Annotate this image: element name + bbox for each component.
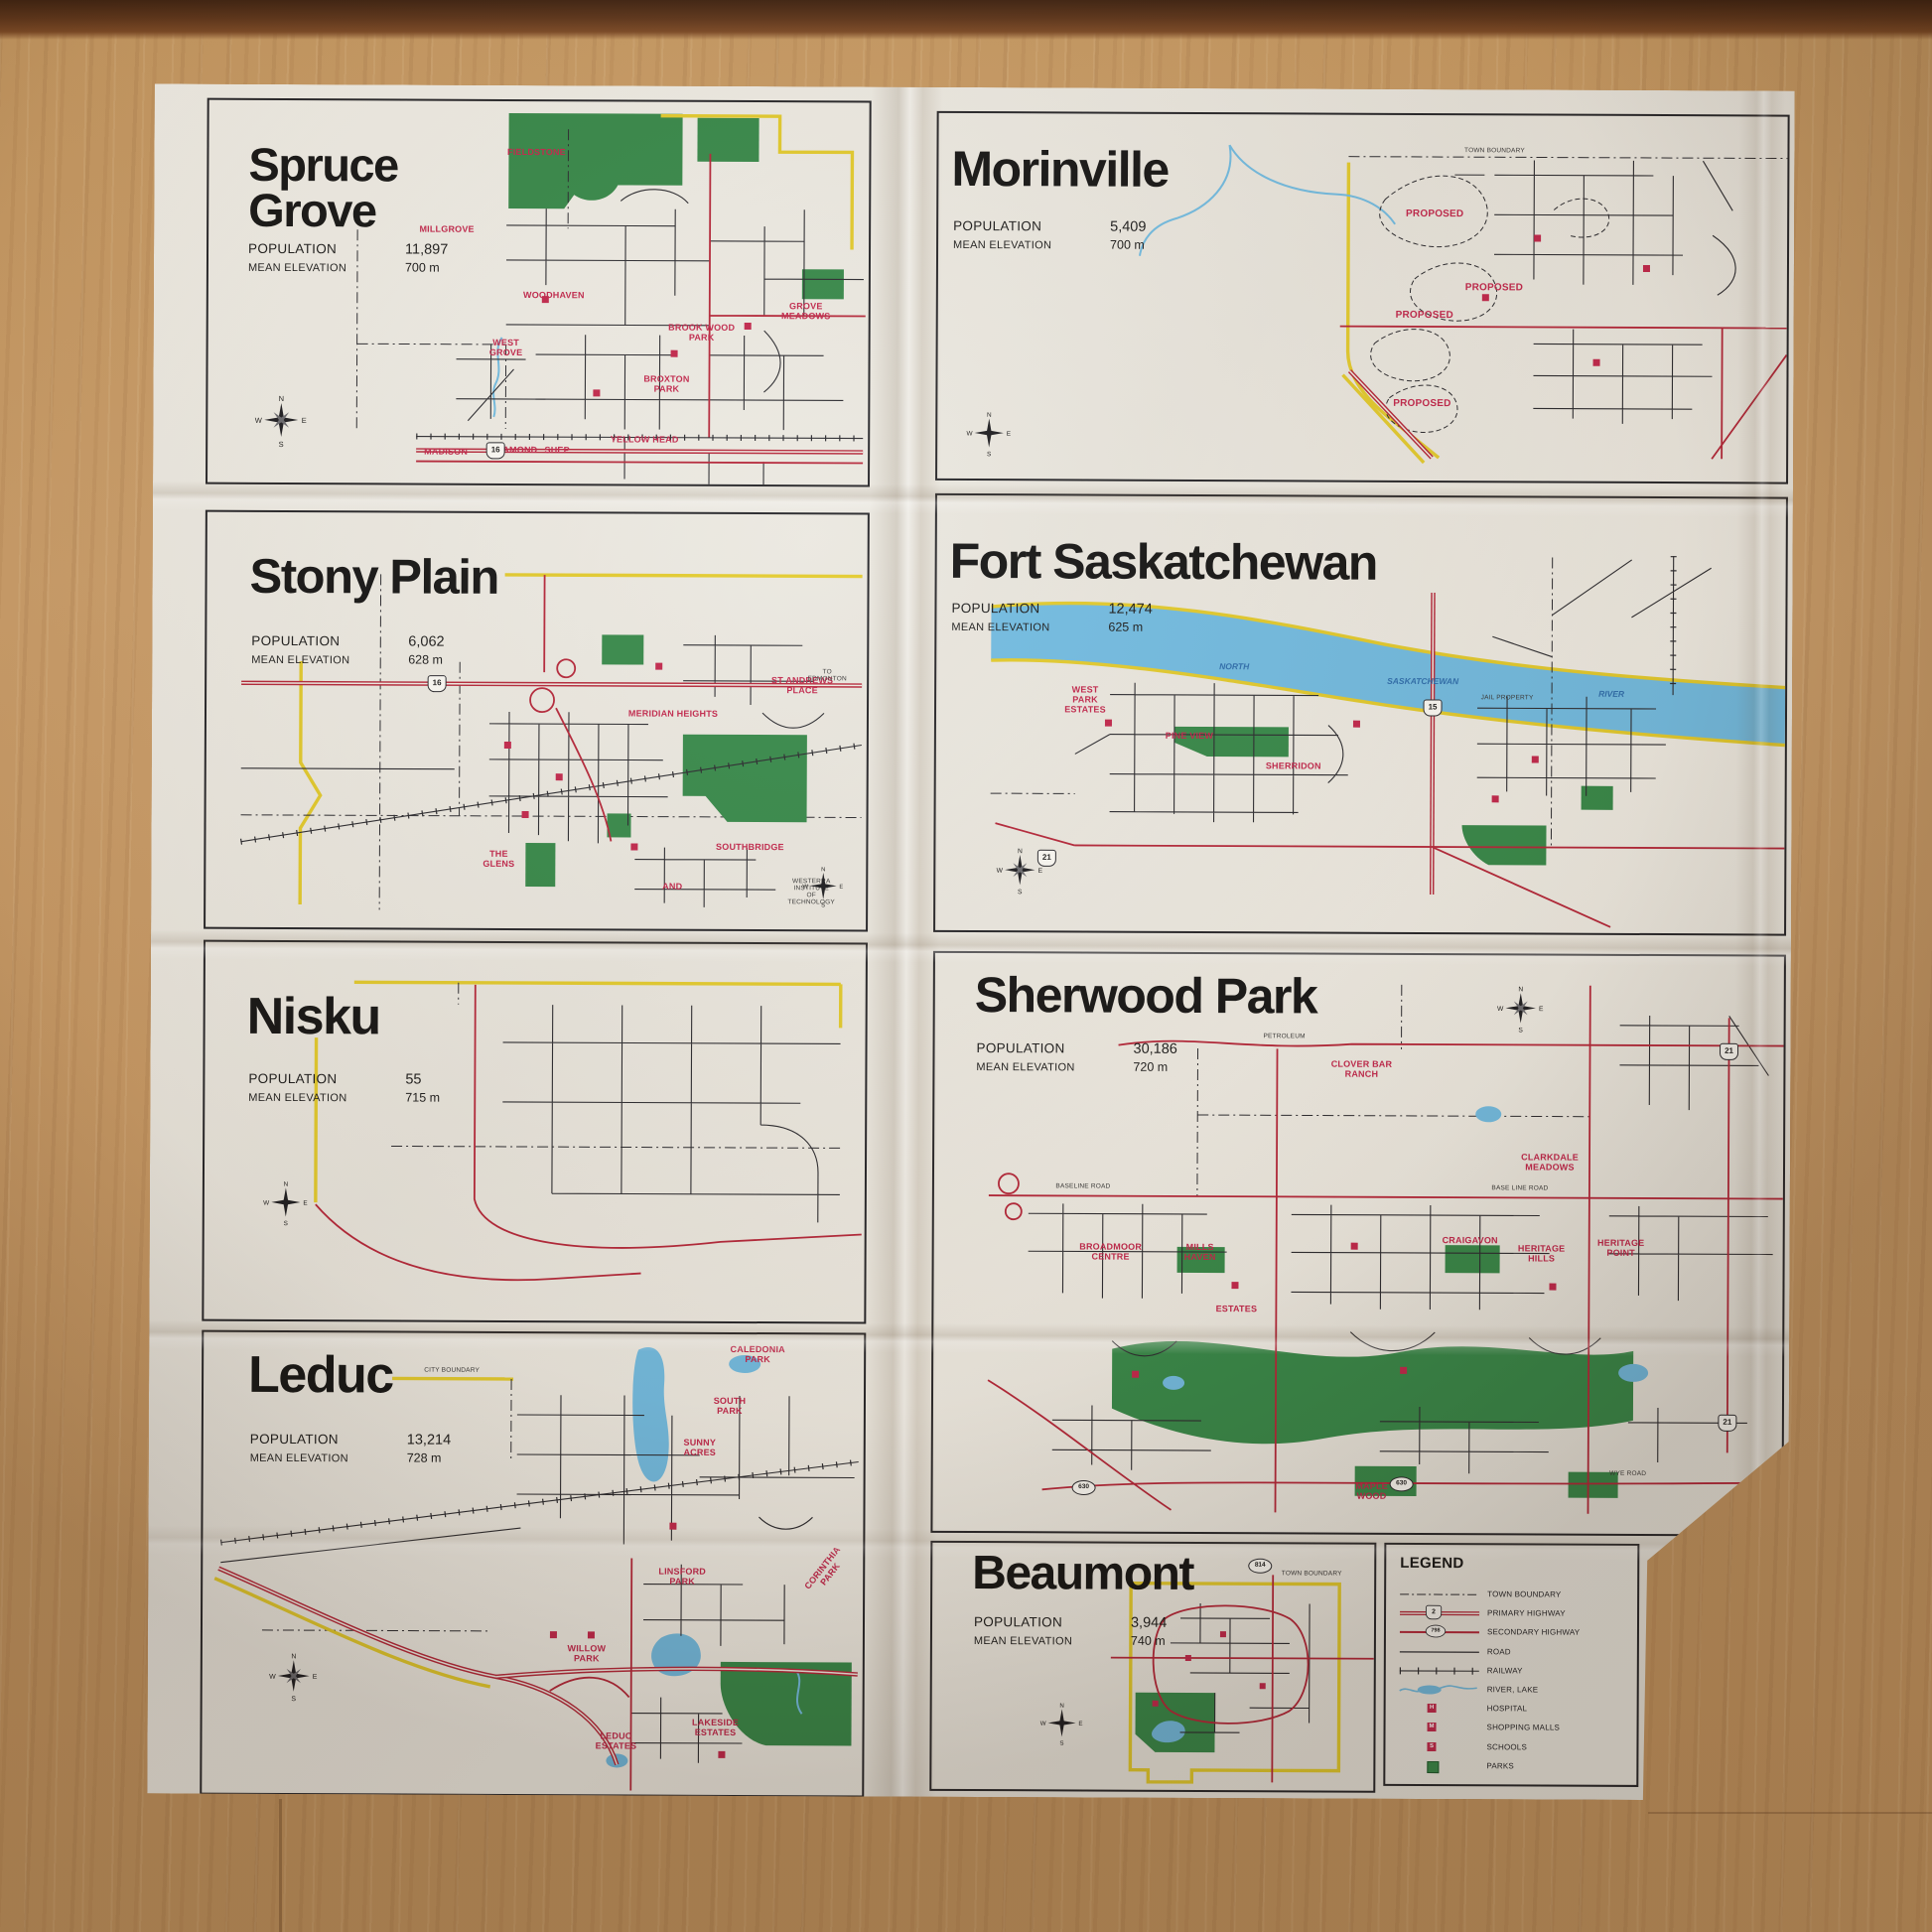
map-label-small: WYE ROAD <box>1609 1470 1646 1477</box>
school-icon <box>1220 1631 1226 1637</box>
elevation-value: 740 m <box>1131 1634 1166 1648</box>
panel-title: Spruce Grove <box>248 142 506 233</box>
school-icon <box>504 742 511 749</box>
legend-box: LEGEND TOWN BOUNDARY 2 PRIMARY HIGHWAY 7… <box>1383 1543 1639 1787</box>
highway-shield-oval: 630 <box>1072 1480 1096 1495</box>
shopping-mall-icon <box>1231 1282 1238 1289</box>
map-label: PINE VIEW <box>1166 731 1213 741</box>
map-label: MILLGROVE <box>419 224 474 234</box>
shopping-mall-icon <box>1532 756 1539 762</box>
highway-shield: 2 <box>1426 1605 1442 1620</box>
panel-title: Sherwood Park <box>975 971 1317 1021</box>
legend-title: LEGEND <box>1400 1555 1463 1572</box>
hospital-icon <box>1400 1367 1407 1374</box>
legend-row-primary-highway: 2 PRIMARY HIGHWAY <box>1396 1603 1629 1623</box>
svg-text:W: W <box>802 885 808 891</box>
map-label: MAPLE WOOD <box>1355 1481 1388 1501</box>
map-label-small: BASELINE ROAD <box>1055 1182 1110 1189</box>
map-label: CLOVER BAR RANCH <box>1331 1059 1393 1079</box>
legend-row-railway: RAILWAY <box>1396 1661 1629 1681</box>
elevation-value: 628 m <box>408 653 443 667</box>
map-label: YELLOW HEAD <box>611 434 679 444</box>
map-label-small: TO EDMONTON <box>807 668 847 682</box>
school-icon <box>745 323 752 330</box>
map-label: MERIDIAN HEIGHTS <box>628 708 718 718</box>
map-label: SOUTHBRIDGE <box>716 842 784 852</box>
legend-row-shopping-malls: M SHOPPING MALLS <box>1396 1718 1629 1737</box>
svg-text:N: N <box>821 867 825 873</box>
svg-text:E: E <box>839 885 843 891</box>
compass-rose: NE SW <box>253 392 309 448</box>
map-label: LAKESIDE ESTATES <box>692 1718 739 1737</box>
hospital-icon <box>1492 795 1499 802</box>
school-icon <box>1534 234 1541 241</box>
elevation-label: MEAN ELEVATION <box>974 1635 1131 1648</box>
hospital-icon: H <box>1428 1704 1437 1713</box>
svg-text:N: N <box>1059 1703 1063 1710</box>
map-label: WEST PARK ESTATES <box>1064 684 1106 714</box>
school-icon <box>655 663 662 670</box>
map-label: SOUTH PARK <box>714 1396 747 1416</box>
legend-row-schools: S SCHOOLS <box>1395 1736 1628 1756</box>
elevation-label: MEAN ELEVATION <box>248 262 405 275</box>
svg-text:W: W <box>966 431 973 438</box>
svg-text:S: S <box>279 440 284 448</box>
panel-beaumont: Beaumont POPULATION3,944 MEAN ELEVATION7… <box>929 1541 1376 1793</box>
legend-row-town-boundary: TOWN BOUNDARY <box>1396 1585 1629 1604</box>
hospital-icon <box>1593 359 1600 366</box>
legend-row-parks: PARKS <box>1395 1756 1628 1776</box>
population-value: 3,944 <box>1131 1615 1167 1631</box>
svg-text:E: E <box>302 416 307 425</box>
map-label: HERITAGE POINT <box>1597 1238 1645 1258</box>
population-label: POPULATION <box>953 218 1110 234</box>
svg-text:S: S <box>1518 1028 1523 1034</box>
panel-stats: POPULATION3,944 MEAN ELEVATION740 m <box>974 1614 1167 1648</box>
map-label: MADISON <box>424 447 468 457</box>
panel-title: Stony Plain <box>249 554 498 603</box>
school-icon <box>669 1523 676 1530</box>
svg-text:W: W <box>1497 1006 1504 1013</box>
panel-leduc: Leduc POPULATION13,214 MEAN ELEVATION728… <box>200 1330 866 1798</box>
svg-text:S: S <box>821 903 825 908</box>
panel-stats: POPULATION30,186 MEAN ELEVATION720 m <box>976 1040 1177 1074</box>
legend-rows: TOWN BOUNDARY 2 PRIMARY HIGHWAY 798 SECO… <box>1395 1585 1629 1776</box>
highway-shield: 16 <box>486 442 505 459</box>
map-label: LEDUC ESTATES <box>596 1730 637 1750</box>
map-label: WEST GROVE <box>489 338 523 357</box>
svg-text:S: S <box>987 451 991 457</box>
hospital-icon <box>671 350 678 357</box>
highway-shield: 21 <box>1718 1415 1736 1432</box>
panel-spruce-grove: Spruce Grove POPULATION11,897 MEAN ELEVA… <box>206 98 872 487</box>
svg-text:E: E <box>313 1674 318 1681</box>
map-label: ESTATES <box>1216 1304 1258 1313</box>
shopping-mall-icon <box>522 811 529 818</box>
svg-text:N: N <box>279 394 284 403</box>
svg-text:S: S <box>1059 1740 1063 1746</box>
elevation-label: MEAN ELEVATION <box>248 1092 405 1105</box>
population-label: POPULATION <box>250 1432 407 1448</box>
legend-row-secondary-highway: 798 SECONDARY HIGHWAY <box>1396 1622 1629 1642</box>
compass-rose: NE SW <box>268 1650 320 1702</box>
population-value: 6,062 <box>408 634 444 650</box>
elevation-value: 715 m <box>405 1091 440 1105</box>
map-label: LINSFORD PARK <box>658 1567 706 1587</box>
map-label: PROPOSED <box>1406 208 1463 219</box>
compass-rose: NE SW <box>1496 983 1546 1033</box>
compass-rose: NE SW <box>1038 1700 1084 1745</box>
map-label: WILLOW PARK <box>567 1643 606 1663</box>
school-icon <box>1353 721 1360 728</box>
park-icon <box>1427 1761 1439 1773</box>
school-icon <box>1351 1243 1358 1250</box>
panel-stony-plain: Stony Plain POPULATION6,062 MEAN ELEVATI… <box>204 510 870 932</box>
map-label: FIELDSTONE <box>507 147 566 157</box>
population-value: 30,186 <box>1133 1041 1176 1057</box>
compass-rose: NE SW <box>262 1178 310 1226</box>
population-value: 12,474 <box>1108 602 1152 618</box>
school-icon <box>1105 720 1112 727</box>
svg-text:W: W <box>255 416 263 425</box>
map-label: SHEP <box>544 445 569 455</box>
photo-scene: Spruce Grove POPULATION11,897 MEAN ELEVA… <box>0 0 1932 1932</box>
highway-shield: 15 <box>1423 699 1442 716</box>
population-label: POPULATION <box>951 601 1108 617</box>
map-label: GROVE MEADOWS <box>781 301 830 321</box>
map-label: WOODHAVEN <box>523 290 585 300</box>
shopping-mall-icon: M <box>1428 1723 1437 1731</box>
svg-text:E: E <box>1078 1721 1082 1727</box>
school-icon: S <box>1427 1742 1436 1751</box>
river-label: SASKATCHEWAN <box>1387 676 1458 686</box>
river-label: NORTH <box>1219 661 1249 671</box>
panel-title: Beaumont <box>972 1551 1193 1598</box>
elevation-value: 700 m <box>1110 238 1145 252</box>
svg-text:S: S <box>1018 889 1023 895</box>
hospital-icon <box>556 773 563 780</box>
svg-text:E: E <box>1539 1006 1544 1013</box>
panel-fort-saskatchewan: Fort Saskatchewan POPULATION12,474 MEAN … <box>933 493 1788 936</box>
compass-rose: NE SW <box>801 864 845 907</box>
school-icon <box>1185 1655 1191 1661</box>
panel-stats: POPULATION55 MEAN ELEVATION715 m <box>248 1071 440 1105</box>
river-label: RIVER <box>1598 689 1624 699</box>
svg-text:W: W <box>997 868 1004 875</box>
hospital-icon <box>588 1631 595 1638</box>
map-label: SHERRIDON <box>1266 760 1321 770</box>
svg-text:E: E <box>1007 431 1011 438</box>
population-value: 55 <box>405 1072 421 1088</box>
svg-text:N: N <box>1018 848 1023 855</box>
elevation-label: MEAN ELEVATION <box>976 1061 1133 1074</box>
population-label: POPULATION <box>977 1040 1134 1056</box>
school-icon <box>1132 1371 1139 1378</box>
svg-text:E: E <box>303 1200 307 1207</box>
school-icon <box>1482 294 1489 301</box>
population-value: 11,897 <box>405 242 448 258</box>
legend-row-road: ROAD <box>1396 1641 1629 1661</box>
panel-stats: POPULATION11,897 MEAN ELEVATION700 m <box>248 241 448 275</box>
map-label: CALEDONIA PARK <box>730 1344 784 1364</box>
map-label: PROPOSED <box>1393 398 1450 409</box>
map-label: THE GLENS <box>483 849 514 869</box>
school-icon <box>630 844 637 851</box>
legend-row-hospital: H HOSPITAL <box>1396 1699 1629 1719</box>
panel-stats: POPULATION12,474 MEAN ELEVATION625 m <box>951 601 1153 634</box>
map-label-small: PETROLEUM <box>1263 1033 1305 1039</box>
highway-shield: 16 <box>428 675 447 692</box>
map-label-small: JAIL PROPERTY <box>1481 694 1534 701</box>
highway-shield: 21 <box>1720 1043 1738 1060</box>
map-label: PROPOSED <box>1396 310 1453 321</box>
map-label: BROADMOOR CENTRE <box>1079 1241 1142 1261</box>
map-label-small: CITY BOUNDARY <box>424 1367 480 1374</box>
population-label: POPULATION <box>974 1614 1131 1630</box>
map-label-small: TOWN BOUNDARY <box>1464 147 1525 154</box>
highway-shield-oval: 630 <box>1390 1476 1414 1491</box>
elevation-value: 720 m <box>1133 1060 1168 1074</box>
wood-plank-seam <box>1648 1812 1932 1814</box>
population-label: POPULATION <box>248 1071 405 1087</box>
svg-text:S: S <box>284 1220 288 1226</box>
svg-text:W: W <box>269 1674 276 1681</box>
shopping-mall-icon <box>550 1631 557 1638</box>
compass-rose: NE SW <box>965 409 1013 457</box>
panel-title: Fort Saskatchewan <box>950 537 1377 587</box>
svg-text:N: N <box>284 1181 289 1188</box>
map-label: PROPOSED <box>1465 282 1523 293</box>
population-label: POPULATION <box>251 633 408 649</box>
elevation-label: MEAN ELEVATION <box>953 239 1110 252</box>
school-icon <box>718 1751 725 1758</box>
map-label: BROXTON PARK <box>643 374 689 394</box>
elevation-value: 625 m <box>1108 621 1143 634</box>
school-icon <box>1549 1284 1556 1291</box>
panel-title: Nisku <box>247 992 380 1042</box>
map-label: AND <box>662 882 682 892</box>
elevation-label: MEAN ELEVATION <box>250 1452 407 1465</box>
elevation-label: MEAN ELEVATION <box>251 654 408 667</box>
svg-text:S: S <box>291 1696 296 1702</box>
svg-text:W: W <box>1040 1721 1046 1727</box>
elevation-label: MEAN ELEVATION <box>951 621 1108 634</box>
map-label-small: BASE LINE ROAD <box>1491 1184 1548 1191</box>
highway-shield: 21 <box>1037 850 1056 867</box>
elevation-value: 700 m <box>405 261 440 275</box>
map-label: CLARKDALE MEADOWS <box>1521 1152 1579 1172</box>
table-edge <box>0 0 1932 40</box>
population-value: 13,214 <box>407 1433 451 1449</box>
school-icon <box>1153 1701 1159 1707</box>
panel-stats: POPULATION6,062 MEAN ELEVATION628 m <box>251 633 444 667</box>
population-value: 5,409 <box>1110 219 1146 235</box>
population-label: POPULATION <box>248 241 405 257</box>
panel-morinville: Morinville POPULATION5,409 MEAN ELEVATIO… <box>935 111 1790 484</box>
svg-text:N: N <box>291 1653 296 1660</box>
map-label: BROOK WOOD PARK <box>668 323 735 343</box>
panel-stats: POPULATION13,214 MEAN ELEVATION728 m <box>250 1432 452 1465</box>
map-label: MILLS HAVEN <box>1184 1242 1216 1262</box>
svg-text:N: N <box>1518 986 1523 993</box>
svg-text:W: W <box>263 1199 270 1206</box>
legend-row-river-lake: RIVER, LAKE <box>1396 1680 1629 1700</box>
panel-stats: POPULATION5,409 MEAN ELEVATION700 m <box>953 218 1146 252</box>
panel-nisku: Nisku POPULATION55 MEAN ELEVATION715 m N… <box>202 940 868 1324</box>
map-label: CRAIGAVON <box>1443 1235 1498 1245</box>
elevation-value: 728 m <box>407 1451 442 1465</box>
shopping-mall-icon <box>593 389 600 396</box>
wood-plank-seam <box>279 1799 282 1932</box>
map-label-small: TOWN BOUNDARY <box>1282 1570 1342 1577</box>
highway-shield-oval: 814 <box>1248 1559 1272 1574</box>
roads-layer <box>502 1005 841 1222</box>
panel-title: Morinville <box>951 145 1169 194</box>
panel-sherwood-park: Sherwood Park POPULATION30,186 MEAN ELEV… <box>930 951 1786 1537</box>
svg-text:E: E <box>1038 868 1043 875</box>
svg-text:N: N <box>987 412 992 419</box>
school-icon <box>1643 265 1650 272</box>
map-sheet: Spruce Grove POPULATION11,897 MEAN ELEVA… <box>147 83 1794 1800</box>
map-label: SUNNY ACRES <box>683 1438 716 1457</box>
map-label: HERITAGE HILLS <box>1518 1243 1566 1263</box>
school-icon <box>1260 1683 1266 1689</box>
panel-title: Leduc <box>248 1350 393 1401</box>
